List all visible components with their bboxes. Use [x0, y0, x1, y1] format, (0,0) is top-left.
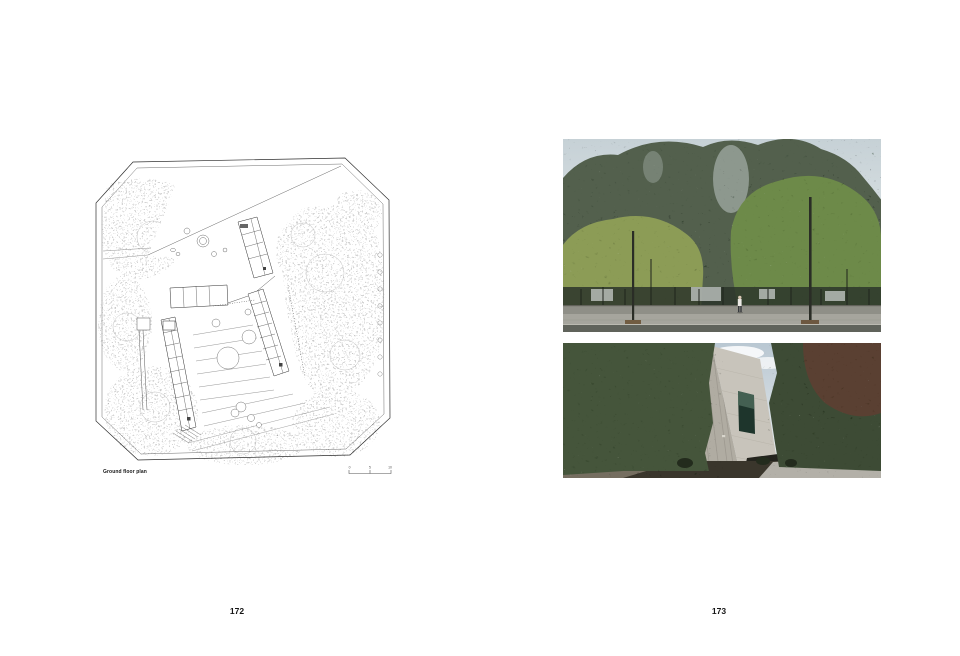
wall-top-edge	[563, 305, 881, 306]
low-wall	[563, 305, 881, 314]
facade-plaque	[722, 435, 725, 437]
sidewalk	[563, 314, 881, 325]
photo-street-trees	[563, 139, 881, 332]
scale-bar: 0 5 10	[348, 464, 392, 478]
scale-label-5: 5	[369, 465, 371, 469]
sky-gap-2	[643, 151, 663, 183]
page-number-right: 173	[702, 606, 736, 616]
asphalt-road	[563, 325, 881, 332]
dense-trees-left	[563, 343, 715, 475]
ground-floor-plan-drawing	[93, 155, 393, 465]
scale-label-10: 10	[388, 465, 392, 469]
scale-label-0: 0	[349, 465, 351, 469]
page-number-left: 172	[220, 606, 254, 616]
plan-caption: Ground floor plan	[103, 469, 147, 475]
photo-concrete-building	[563, 343, 881, 478]
